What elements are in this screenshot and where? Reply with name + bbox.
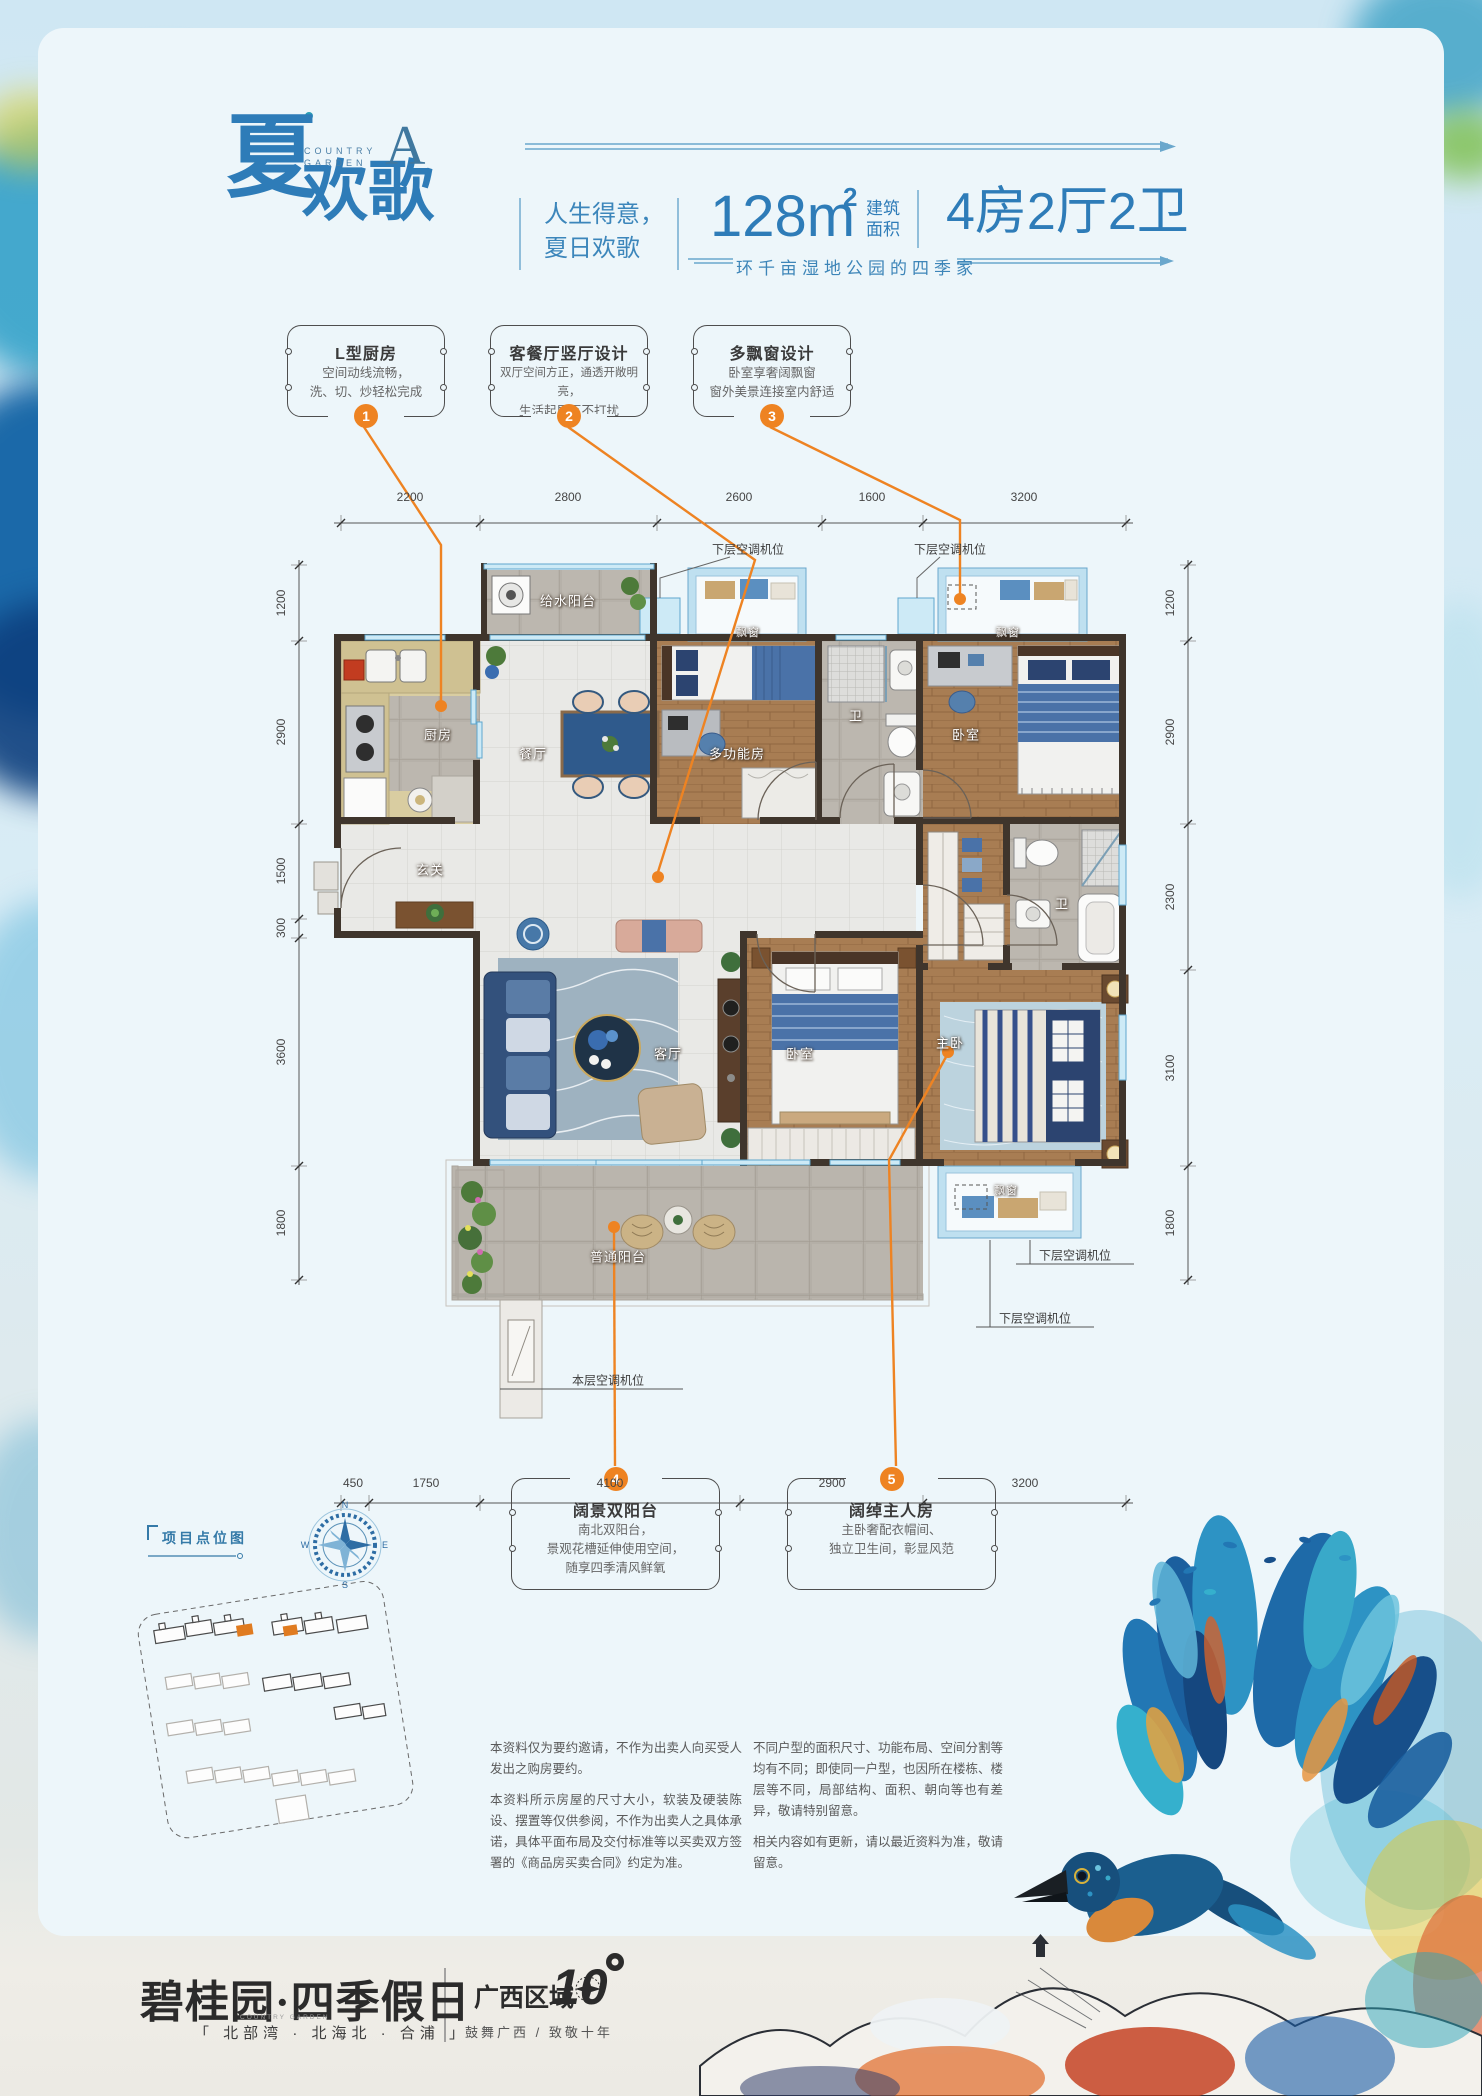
- area-number: 128m: [710, 188, 855, 246]
- dim-top-3: 2600: [726, 490, 753, 504]
- dim-left-3: 1500: [274, 858, 288, 885]
- ac-label-top-2: 下层空调机位: [914, 541, 986, 558]
- feature-title: 多飘窗设计: [694, 340, 850, 364]
- feature-title: L型厨房: [288, 340, 444, 364]
- footer-brand-small: COUNTRY GARDEN: [240, 2014, 330, 2021]
- feature-title: 客餐厅竖厅设计: [491, 340, 647, 364]
- room-label-bay1: 飘窗: [736, 624, 760, 640]
- dim-top-2: 2800: [555, 490, 582, 504]
- dim-bottom-3: 4100: [597, 1476, 624, 1490]
- feature-line: 双厅空间方正，通透开敞明亮，: [491, 364, 647, 402]
- feature-line: 窗外美景连接室内舒适: [694, 383, 850, 402]
- brand-line2: GARDEN: [304, 158, 367, 168]
- room-label-bath1: 卫: [849, 706, 863, 725]
- feature-box-balcony: 阔景双阳台 南北双阳台， 景观花槽延伸使用空间， 随享四季清风鲜氧 4: [511, 1478, 720, 1590]
- compass-e: E: [382, 1540, 388, 1550]
- feature-line: 景观花槽延伸使用空间，: [512, 1540, 719, 1559]
- feature-box-hall: 客餐厅竖厅设计 双厅空间方正，通透开敞明亮， 生活起居互不打扰 2: [490, 325, 648, 417]
- disclaimer-paragraph: 相关内容如有更新，请以最近资料为准，敬请留意。: [753, 1832, 1003, 1874]
- compass-n: N: [342, 1500, 349, 1510]
- ac-label-bottom-right-2: 下层空调机位: [999, 1310, 1071, 1327]
- room-label-kitchen: 厨房: [424, 725, 452, 744]
- dim-left-6: 1800: [274, 1210, 288, 1237]
- room-label-bay3: 飘窗: [994, 1182, 1018, 1198]
- dim-right-2: 2900: [1163, 719, 1177, 746]
- disclaimer-right: 不同户型的面积尺寸、功能布局、空间分割等均有不同；即使同一户型，也因所在楼栋、楼…: [753, 1738, 1003, 1884]
- feature-box-baywindow: 多飘窗设计 卧室享奢阔飘窗 窗外美景连接室内舒适 3: [693, 325, 851, 417]
- dim-right-4: 3100: [1163, 1055, 1177, 1082]
- feature-line: 随享四季清风鲜氧: [512, 1559, 719, 1578]
- area-unit-line2: 面积: [866, 215, 900, 240]
- room-label-master-bath: 卫: [1055, 894, 1069, 913]
- feature-number-badge: 3: [760, 404, 784, 428]
- dim-left-5: 3600: [274, 1039, 288, 1066]
- disclaimer-left: 本资料仅为要约邀请，不作为出卖人向买受人发出之购房要约。 本资料所示房屋的尺寸大…: [490, 1738, 742, 1884]
- footer-slogan: 鼓舞广西 / 致敬十年: [465, 2022, 613, 2041]
- room-label-living: 客厅: [654, 1044, 682, 1063]
- room-label-dining: 餐厅: [519, 744, 547, 763]
- unit-letter: A: [385, 114, 425, 178]
- dim-bottom-2: 1750: [413, 1476, 440, 1490]
- room-label-master: 主卧: [936, 1033, 964, 1052]
- slogan-line2: 夏日欢歌: [544, 228, 640, 263]
- feature-box-master: 阔绰主人房 主卧奢配衣帽间、 独立卫生间，彰显风范 5: [787, 1478, 996, 1590]
- feature-number-badge: 2: [557, 404, 581, 428]
- dim-bottom-4: 2900: [819, 1476, 846, 1490]
- area-sup: 2: [843, 182, 857, 213]
- disclaimer-paragraph: 本资料仅为要约邀请，不作为出卖人向买受人发出之购房要约。: [490, 1738, 742, 1780]
- ac-label-bottom-right-1: 下层空调机位: [1039, 1247, 1111, 1264]
- feature-line: 南北双阳台，: [512, 1521, 719, 1540]
- room-label-bedroom2: 卧室: [786, 1044, 814, 1063]
- ac-label-current-floor: 本层空调机位: [572, 1372, 644, 1389]
- dim-bottom-5: 3200: [1012, 1476, 1039, 1490]
- dim-right-1: 1200: [1163, 590, 1177, 617]
- footer-ten: 10: [552, 1958, 608, 2016]
- feature-box-kitchen: L型厨房 空间动线流畅， 洗、切、炒轻松完成 1: [287, 325, 445, 417]
- compass-w: W: [301, 1540, 310, 1550]
- feature-line: 卧室享奢阔飘窗: [694, 364, 850, 383]
- dim-left-4: 300: [274, 918, 288, 938]
- tagline: 环千亩湿地公园的四季家: [736, 254, 978, 279]
- dim-top-5: 3200: [1011, 490, 1038, 504]
- room-label-bedroom-top: 卧室: [952, 725, 980, 744]
- slogan-line1: 人生得意，: [544, 194, 664, 229]
- sitemap-title: 项目点位图: [162, 1528, 247, 1548]
- dim-top-4: 1600: [859, 490, 886, 504]
- feature-line: 洗、切、炒轻松完成: [288, 383, 444, 402]
- dim-bottom-1: 450: [343, 1476, 363, 1490]
- room-label-water-balcony: 给水阳台: [540, 591, 596, 610]
- dim-right-3: 2300: [1163, 884, 1177, 911]
- room-label-balcony: 普通阳台: [590, 1247, 646, 1266]
- disclaimer-paragraph: 本资料所示房屋的尺寸大小，软装及硬装陈设、摆置等仅供参阅，不作为出卖人之具体承诺…: [490, 1790, 742, 1874]
- compass-s: S: [342, 1580, 348, 1590]
- room-label-bay2: 飘窗: [996, 624, 1020, 640]
- brand-line1: COUNTRY: [304, 146, 376, 156]
- feature-line: 独立卫生间，彰显风范: [788, 1540, 995, 1559]
- feature-title: 阔景双阳台: [512, 1497, 719, 1521]
- feature-line: 主卧奢配衣帽间、: [788, 1521, 995, 1540]
- ac-label-top-1: 下层空调机位: [712, 541, 784, 558]
- feature-number-badge: 1: [354, 404, 378, 428]
- disclaimer-paragraph: 不同户型的面积尺寸、功能布局、空间分割等均有不同；即使同一户型，也因所在楼栋、楼…: [753, 1738, 1003, 1822]
- layout-text: 4房2厅2卫: [946, 186, 1189, 238]
- dim-left-1: 1200: [274, 590, 288, 617]
- feature-number-badge: 5: [880, 1467, 904, 1491]
- dim-right-5: 1800: [1163, 1210, 1177, 1237]
- room-label-entry: 玄关: [416, 860, 444, 879]
- footer-sub: 「 北部湾 · 北海北 · 合浦 」: [194, 2022, 469, 2043]
- feature-line: 空间动线流畅，: [288, 364, 444, 383]
- poster-page: 夏 欢歌 COUNTRY GARDEN A 人生得意， 夏日欢歌 128m 2 …: [0, 0, 1482, 2096]
- dim-left-2: 2900: [274, 719, 288, 746]
- feature-title: 阔绰主人房: [788, 1497, 995, 1521]
- room-label-multi: 多功能房: [709, 744, 765, 763]
- poster-card: [38, 28, 1444, 1936]
- dim-top-1: 2200: [397, 490, 424, 504]
